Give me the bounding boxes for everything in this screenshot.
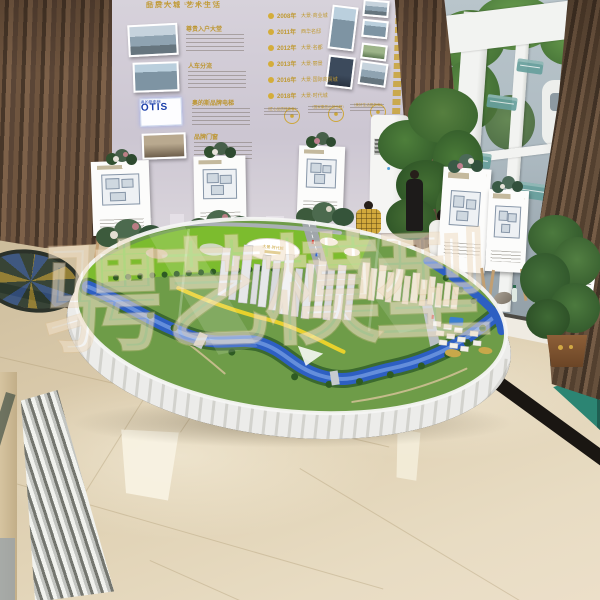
showroom-photo: 品质大城 艺术生活 RETREATS LIVE ART 尊贵入户大堂 人车分流 … bbox=[0, 0, 600, 600]
stock-watermark: 骋艺模型 bbox=[41, 204, 526, 386]
plant-pot bbox=[544, 335, 590, 367]
potted-plant bbox=[518, 215, 600, 370]
